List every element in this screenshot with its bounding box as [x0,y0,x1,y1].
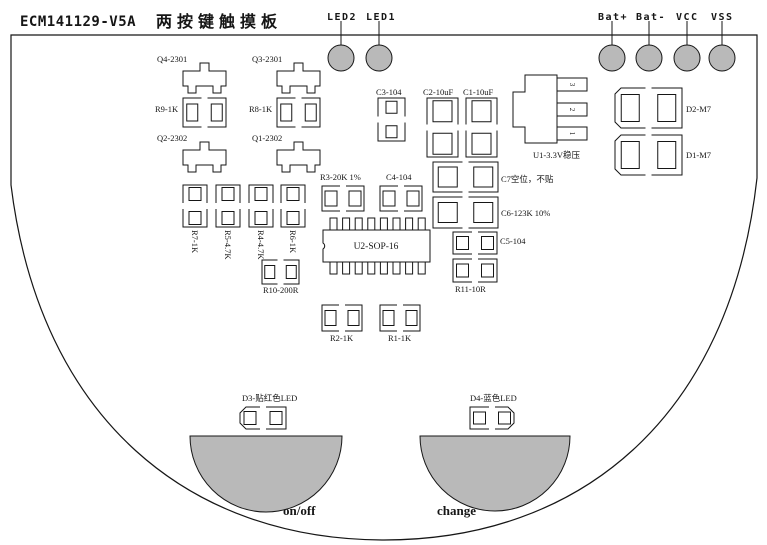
pad [189,212,201,225]
component-label-U2: U2-SOP-16 [354,242,399,252]
board-title: 两按键触摸板 [156,12,282,31]
pad [386,126,397,138]
ic-pin [406,218,413,230]
ic-pin [380,262,387,274]
component-label-R5: R5-4.7K [223,230,233,260]
pad [621,142,639,169]
component-label-R3: R3-20K 1% [320,172,361,182]
pad [407,191,419,206]
component-R7: R7-1K [183,185,207,254]
pad [286,266,296,279]
footprint-bracket [240,407,260,429]
test-pad-LED2: LED2 [327,12,357,71]
pad [499,412,511,424]
footprint-bracket [208,98,227,127]
touch-pad-shape [420,436,570,511]
touch-pad-label: on/off [283,503,316,518]
component-C4: C4-104 [380,172,422,211]
pad [348,311,359,326]
component-label-C6: C6-123K 10% [501,208,550,218]
transistor-outline [183,142,226,172]
component-C2: C2-10uF [423,87,458,157]
test-pad-circle [328,45,354,71]
touch-pad-onoff: on/off [190,436,342,518]
pcb-layout-canvas: ECM141129-V5A 两按键触摸板 LED2LED1Bat+Bat-VCC… [0,0,767,545]
pad [325,311,336,326]
pad [482,264,494,277]
pad [433,133,452,154]
test-pad-circle [674,45,700,71]
component-label-R7: R7-1K [190,230,200,254]
footprint-bracket [466,98,497,125]
pad [211,104,222,121]
footprint-bracket [478,232,497,254]
pad [325,191,337,206]
footprint-bracket [469,197,499,228]
regulator-body [513,75,557,143]
ic-pin [330,262,337,274]
component-C6: C6-123K 10% [433,197,550,228]
footprint-bracket [453,232,472,254]
pad [438,203,457,223]
ic-pin [393,262,400,274]
touch-pad-label: change [437,503,476,518]
ic-pin [380,218,387,230]
pad [658,95,676,122]
footprint-bracket [302,98,321,127]
component-label-D1: D1-M7 [686,150,711,160]
component-Q4: Q4-2301 [157,54,226,93]
pad [621,95,639,122]
test-pad-circle [599,45,625,71]
ic-pin [393,218,400,230]
component-R6: R6-1K [281,185,305,254]
test-pad-label: VCC [676,12,699,23]
footprint-bracket [495,407,514,429]
component-label-D4: D4-蓝色LED [470,393,517,403]
footprint-bracket [266,407,286,429]
footprint-bracket [433,197,463,228]
component-label-R10: R10-200R [263,285,299,295]
transistor-outline [277,63,320,93]
pad [222,188,234,201]
component-R9: R9-1K [155,98,226,127]
component-R10: R10-200R [262,260,299,295]
test-pad-VCC: VCC [674,12,700,71]
test-pad-label: VSS [711,12,734,23]
component-R8: R8-1K [249,98,320,127]
component-U1: 321U1-3.3V稳压 [513,75,587,160]
footprint-bracket [466,131,497,158]
ic-pin [343,262,350,274]
pad [305,104,316,121]
footprint-bracket [277,98,296,127]
ic-pin [368,262,375,274]
pad [457,237,469,250]
component-C5: C5-104 [453,232,526,254]
component-label-Q2: Q2-2302 [157,133,187,143]
component-label-R1: R1-1K [388,333,412,343]
component-label-Q4: Q4-2301 [157,54,187,64]
component-label-Q1: Q1-2302 [252,133,282,143]
transistor-outline [183,63,226,93]
pad [187,104,198,121]
regulator-pin-number: 1 [568,132,576,136]
ic-pin [368,218,375,230]
footprint-bracket [470,407,489,429]
component-label-R11: R11-10R [455,284,486,294]
component-R11: R11-10R [453,259,497,294]
component-R3: R3-20K 1% [320,172,364,211]
pcb-diagram: ECM141129-V5A 两按键触摸板 LED2LED1Bat+Bat-VCC… [0,0,767,545]
pad [189,188,201,201]
regulator-pin-number: 2 [568,108,576,112]
pad [265,266,275,279]
component-label-C5: C5-104 [500,236,526,246]
ic-pin [355,262,362,274]
component-D2: D2-M7 [615,88,711,128]
component-label-C2: C2-10uF [423,87,454,97]
footprint-bracket [183,98,202,127]
ic-pin [418,218,425,230]
test-pad-Bat-plus: Bat+ [598,12,628,71]
board-code: ECM141129-V5A [20,14,136,30]
component-C3: C3-104 [376,87,405,141]
test-pad-VSS: VSS [709,12,735,71]
component-label-R6: R6-1K [288,230,298,254]
component-label-R4: R4-4.7K [256,230,266,260]
pad [457,264,469,277]
pad [406,311,417,326]
footprint-bracket [427,98,458,125]
component-label-C3: C3-104 [376,87,402,97]
component-label-C4: C4-104 [386,172,412,182]
test-pad-circle [636,45,662,71]
test-pad-circle [709,45,735,71]
test-pad-LED1: LED1 [366,12,396,71]
component-Q2: Q2-2302 [157,133,226,172]
component-U2: U2-SOP-16 [323,218,430,274]
pad [349,191,361,206]
pad [222,212,234,225]
pad [383,191,395,206]
pad [281,104,292,121]
component-D3: D3-贴红色LED [240,393,297,429]
component-R5: R5-4.7K [216,185,240,260]
component-label-U1: U1-3.3V稳压 [533,150,580,160]
component-label-D2: D2-M7 [686,104,711,114]
component-D4: D4-蓝色LED [470,393,517,429]
test-pad-label: LED2 [327,12,357,23]
component-R2: R2-1K [322,305,362,343]
pad [474,167,493,187]
component-label-R8: R8-1K [249,104,273,114]
pad [474,412,486,424]
transistor-outline [277,142,320,172]
touch-pad-shape [190,436,342,512]
component-label-R2: R2-1K [330,333,354,343]
ic-pin [330,218,337,230]
pad [482,237,494,250]
component-label-C7: C7空位，不贴 [501,174,554,184]
component-R4: R4-4.7K [249,185,273,260]
ic-pin [343,218,350,230]
touch-pad-change: change [420,436,570,518]
pad [472,101,491,122]
pad [383,311,394,326]
component-Q3: Q3-2301 [252,54,320,93]
test-pad-label: Bat+ [598,12,628,23]
pad [287,212,299,225]
pad [438,167,457,187]
component-label-D3: D3-贴红色LED [242,393,297,403]
pad [287,188,299,201]
ic-pin [355,218,362,230]
component-label-R9: R9-1K [155,104,179,114]
test-pad-label: LED1 [366,12,396,23]
test-pad-label: Bat- [636,12,666,23]
regulator-pin-number: 3 [568,83,576,87]
test-pad-circle [366,45,392,71]
pad [658,142,676,169]
pad [474,203,493,223]
component-R1: R1-1K [380,305,420,343]
footprint-bracket [478,259,497,282]
pad [433,101,452,122]
test-pad-Bat-minus: Bat- [636,12,666,71]
ic-pin [406,262,413,274]
pad [472,133,491,154]
components-layer: LED2LED1Bat+Bat-VCCVSSQ4-2301Q3-2301R9-1… [155,12,735,518]
board-outline [11,35,757,540]
ic-pin [418,262,425,274]
component-C1: C1-10uF [463,87,497,157]
component-Q1: Q1-2302 [252,133,320,172]
component-C7: C7空位，不贴 [433,162,554,192]
pad [244,412,256,425]
pad [255,188,267,201]
component-label-C1: C1-10uF [463,87,494,97]
footprint-bracket [453,259,472,282]
footprint-bracket [427,131,458,158]
component-label-Q3: Q3-2301 [252,54,282,64]
pad [255,212,267,225]
pad [270,412,282,425]
pad [386,101,397,113]
component-D1: D1-M7 [615,135,711,175]
